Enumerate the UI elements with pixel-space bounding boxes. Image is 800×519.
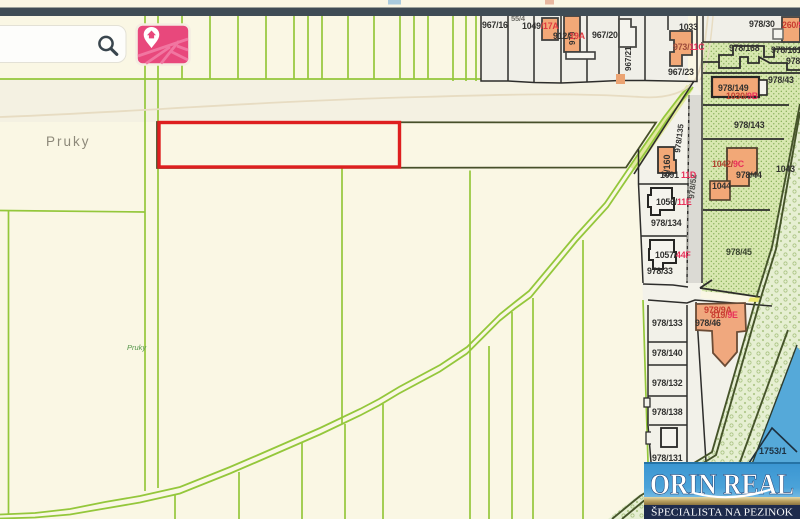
svg-text:978/140: 978/140 (652, 348, 683, 358)
svg-text:973/11C: 973/11C (673, 42, 705, 52)
svg-text:978/44: 978/44 (736, 170, 762, 180)
svg-text:967/23: 967/23 (668, 67, 694, 77)
svg-text:ŠPECIALISTA NA PEZINOK: ŠPECIALISTA NA PEZINOK (651, 507, 793, 519)
svg-text:978/132: 978/132 (652, 378, 683, 388)
svg-text:1049/17A: 1049/17A (522, 21, 559, 31)
svg-text:1056/11E: 1056/11E (656, 197, 692, 207)
svg-text:1091 11D: 1091 11D (660, 170, 696, 180)
svg-text:978/45: 978/45 (726, 247, 752, 257)
svg-text:978/138: 978/138 (652, 407, 683, 417)
svg-text:967/21: 967/21 (624, 46, 633, 71)
svg-text:978/43: 978/43 (768, 75, 794, 85)
svg-text:1753/1: 1753/1 (759, 446, 787, 456)
svg-text:1044: 1044 (712, 181, 731, 191)
svg-text:978/131: 978/131 (652, 453, 683, 463)
svg-text:978/133: 978/133 (652, 318, 683, 328)
svg-text:1033: 1033 (679, 22, 698, 32)
svg-text:978: 978 (786, 56, 800, 66)
svg-text:978/30: 978/30 (749, 19, 775, 29)
svg-text:978/33: 978/33 (647, 266, 673, 276)
svg-text:978/134: 978/134 (651, 218, 682, 228)
svg-text:Pruky: Pruky (46, 134, 91, 149)
svg-text:967/16: 967/16 (482, 20, 508, 30)
svg-text:260/9: 260/9 (782, 20, 800, 30)
svg-text:Pruky: Pruky (127, 343, 147, 352)
svg-text:1043: 1043 (776, 164, 795, 174)
svg-text:819/9E: 819/9E (711, 310, 738, 320)
svg-text:967/20: 967/20 (592, 30, 618, 40)
svg-text:1042/9C: 1042/9C (712, 159, 745, 169)
svg-text:978/161: 978/161 (771, 45, 800, 55)
svg-text:1030/9B: 1030/9B (726, 91, 758, 101)
svg-text:1057/44F: 1057/44F (655, 250, 691, 260)
svg-text:978/143: 978/143 (734, 120, 765, 130)
svg-text:978/168: 978/168 (729, 43, 760, 53)
svg-text:912/19A: 912/19A (553, 31, 586, 41)
